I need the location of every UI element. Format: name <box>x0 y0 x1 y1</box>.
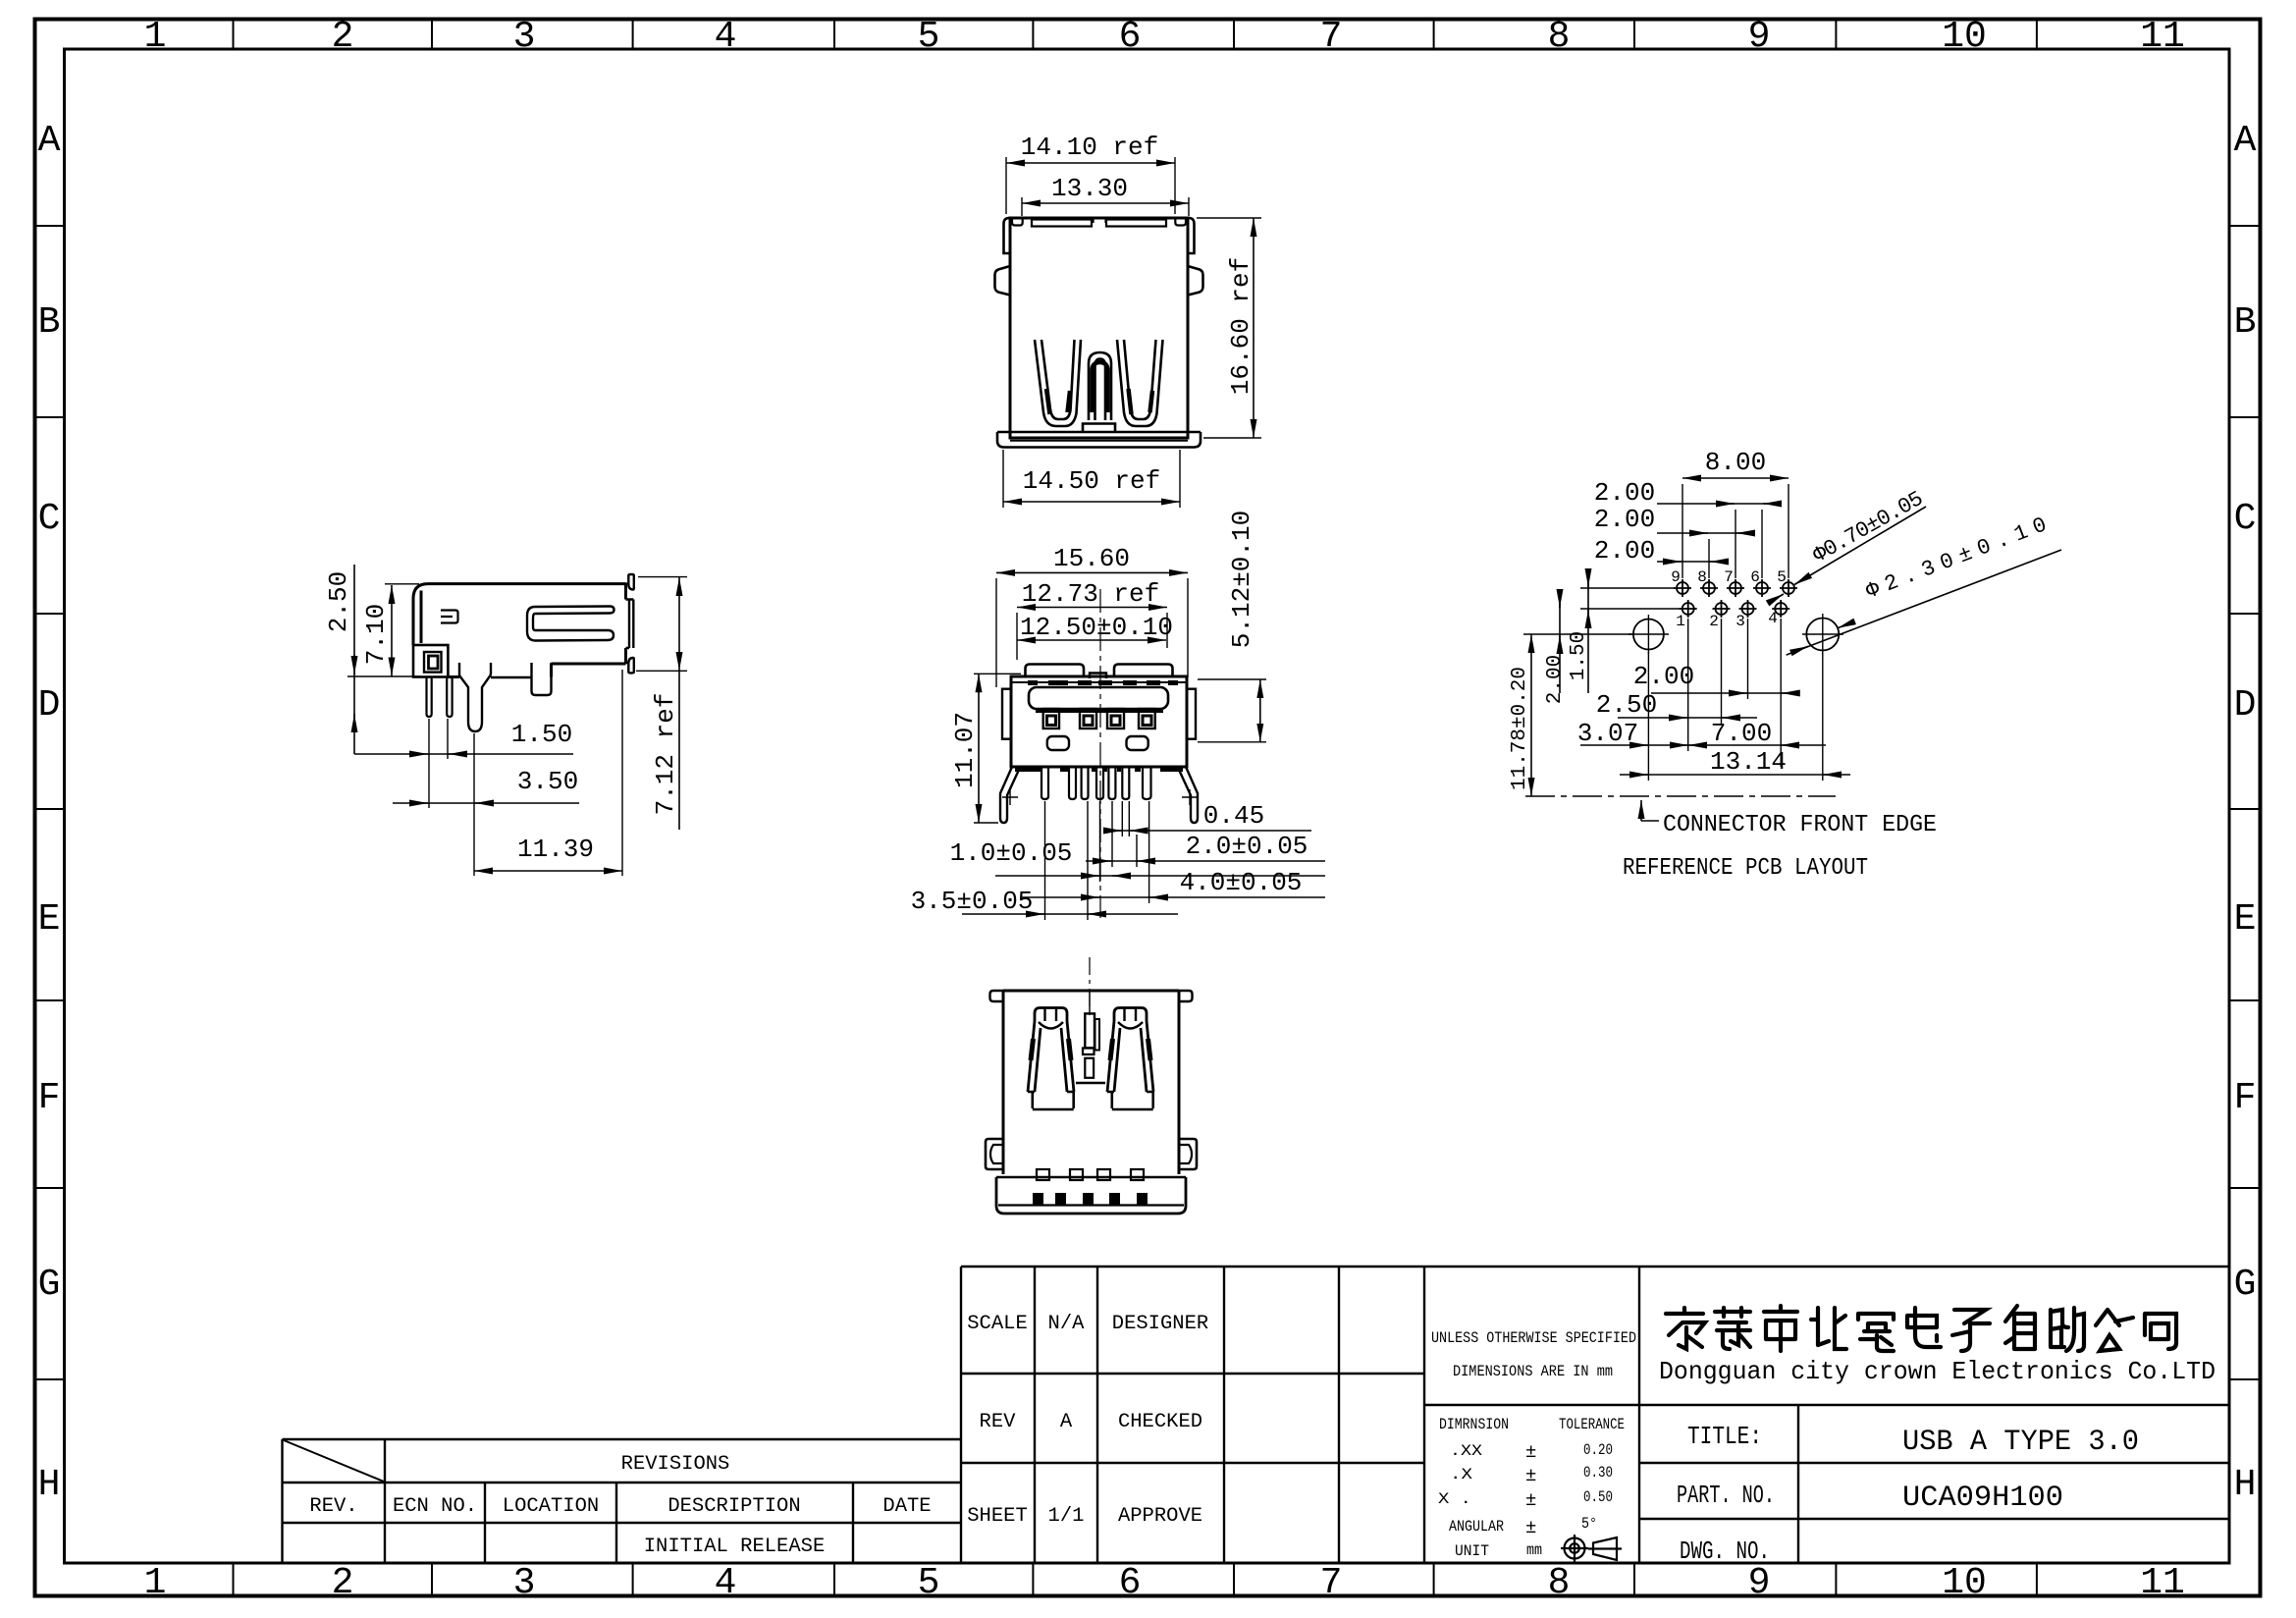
svg-text:9: 9 <box>1671 568 1681 586</box>
svg-text:11.07: 11.07 <box>950 712 980 788</box>
svg-text:H: H <box>38 1464 61 1506</box>
svg-text:7: 7 <box>1320 1562 1343 1604</box>
svg-text:UNIT: UNIT <box>1455 1542 1489 1560</box>
svg-text:2.00: 2.00 <box>1594 505 1655 534</box>
svg-text:LOCATION: LOCATION <box>503 1495 599 1518</box>
svg-text:8: 8 <box>1548 1562 1571 1604</box>
svg-text:9: 9 <box>1748 1562 1771 1604</box>
svg-text:3.50: 3.50 <box>517 767 578 796</box>
svg-text:ANGULAR: ANGULAR <box>1449 1518 1504 1536</box>
svg-text:Dongguan city crown Electronic: Dongguan city crown Electronics Co.LTD <box>1659 1357 2216 1386</box>
svg-text:7.10: 7.10 <box>361 604 391 665</box>
svg-text:10: 10 <box>1942 16 1987 58</box>
svg-text:D: D <box>2234 684 2257 727</box>
svg-text:0.45: 0.45 <box>1203 801 1264 831</box>
svg-text:14.10 ref: 14.10 ref <box>1021 133 1158 162</box>
svg-text:5: 5 <box>918 16 940 58</box>
svg-text:11.78±0.20: 11.78±0.20 <box>1509 667 1531 790</box>
svg-text:±: ± <box>1525 1517 1536 1538</box>
svg-text:9: 9 <box>1748 16 1771 58</box>
svg-text:REV.: REV. <box>309 1495 357 1518</box>
svg-text:16.60 ref: 16.60 ref <box>1226 257 1255 395</box>
svg-text:1.50: 1.50 <box>1568 631 1590 680</box>
svg-text:2.50: 2.50 <box>324 571 353 632</box>
svg-text:CHECKED: CHECKED <box>1118 1411 1202 1433</box>
svg-text:4.0±0.05: 4.0±0.05 <box>1180 868 1303 897</box>
svg-text:2: 2 <box>332 1562 354 1604</box>
svg-text:DIMRNSION: DIMRNSION <box>1439 1416 1509 1433</box>
svg-text:7.12 ref: 7.12 ref <box>651 693 680 816</box>
svg-text:ECN NO.: ECN NO. <box>393 1495 477 1518</box>
svg-text:8: 8 <box>1548 16 1571 58</box>
svg-text:±: ± <box>1525 1489 1536 1511</box>
svg-text:6: 6 <box>1750 568 1760 586</box>
svg-text:APPROVE: APPROVE <box>1118 1505 1202 1528</box>
svg-text:F: F <box>2234 1077 2257 1119</box>
svg-text:A: A <box>2234 120 2257 162</box>
svg-text:G: G <box>2234 1264 2257 1306</box>
svg-text:1: 1 <box>144 16 167 58</box>
svg-text:13.14: 13.14 <box>1710 747 1787 777</box>
svg-text:REFERENCE PCB LAYOUT: REFERENCE PCB LAYOUT <box>1623 855 1868 882</box>
svg-text:4: 4 <box>715 1562 737 1604</box>
svg-text:USB A TYPE 3.0: USB A TYPE 3.0 <box>1902 1426 2139 1459</box>
svg-text:8.00: 8.00 <box>1705 448 1766 477</box>
svg-text:2.00: 2.00 <box>1594 536 1655 566</box>
svg-text:4: 4 <box>1768 610 1778 627</box>
svg-text:D: D <box>38 684 61 727</box>
svg-text:DWG. NO.: DWG. NO. <box>1680 1537 1770 1566</box>
svg-text:11: 11 <box>2140 16 2185 58</box>
svg-text:±: ± <box>1525 1441 1536 1463</box>
svg-text:6: 6 <box>1119 1562 1142 1604</box>
svg-text:SHEET: SHEET <box>967 1505 1028 1528</box>
svg-text:14.50 ref: 14.50 ref <box>1023 466 1160 496</box>
svg-text:12.50±0.10: 12.50±0.10 <box>1020 613 1173 642</box>
svg-text:2.00: 2.00 <box>1544 655 1567 704</box>
svg-text:1.50: 1.50 <box>511 720 572 749</box>
svg-text:C: C <box>38 498 61 540</box>
svg-text:2.0±0.05: 2.0±0.05 <box>1186 832 1308 861</box>
svg-text:11.39: 11.39 <box>517 835 594 864</box>
svg-text:1/1: 1/1 <box>1048 1505 1085 1528</box>
svg-text:8: 8 <box>1697 568 1707 586</box>
svg-text:mm: mm <box>1526 1541 1542 1559</box>
svg-text:2: 2 <box>1709 613 1719 630</box>
svg-text:B: B <box>2234 301 2257 344</box>
svg-text:.X: .X <box>1450 1466 1473 1483</box>
svg-text:3: 3 <box>513 1562 536 1604</box>
svg-text:1: 1 <box>144 1562 167 1604</box>
svg-text:1.0±0.05: 1.0±0.05 <box>950 838 1073 868</box>
svg-text:0.50: 0.50 <box>1583 1488 1613 1506</box>
svg-text:15.60: 15.60 <box>1053 544 1130 573</box>
svg-text:G: G <box>38 1264 61 1306</box>
svg-text:7: 7 <box>1320 16 1343 58</box>
svg-text:REVISIONS: REVISIONS <box>621 1453 730 1476</box>
svg-text:5°: 5° <box>1581 1515 1597 1533</box>
svg-text:2: 2 <box>332 16 354 58</box>
svg-text:E: E <box>2234 898 2257 941</box>
svg-text:.XX: .XX <box>1450 1442 1483 1460</box>
svg-text:N/A: N/A <box>1048 1313 1086 1335</box>
svg-text:UCA09H100: UCA09H100 <box>1902 1482 2063 1515</box>
svg-text:REV: REV <box>980 1411 1017 1433</box>
svg-text:6: 6 <box>1119 16 1142 58</box>
svg-text:A: A <box>1060 1411 1073 1433</box>
svg-text:7.00: 7.00 <box>1711 719 1772 748</box>
svg-text:F: F <box>38 1077 61 1119</box>
svg-text:X .: X . <box>1438 1490 1471 1508</box>
svg-text:2.00: 2.00 <box>1594 478 1655 508</box>
svg-text:1: 1 <box>1676 613 1685 630</box>
svg-text:5.12±0.10: 5.12±0.10 <box>1227 511 1256 648</box>
svg-text:SCALE: SCALE <box>967 1313 1028 1335</box>
svg-text:3: 3 <box>513 16 536 58</box>
svg-text:DIMENSIONS ARE IN mm: DIMENSIONS ARE IN mm <box>1453 1363 1613 1380</box>
svg-text:3: 3 <box>1735 613 1745 630</box>
svg-text:PART. NO.: PART. NO. <box>1677 1481 1775 1510</box>
svg-text:CONNECTOR FRONT EDGE: CONNECTOR FRONT EDGE <box>1663 812 1937 838</box>
svg-text:3.5±0.05: 3.5±0.05 <box>911 887 1034 916</box>
svg-text:10: 10 <box>1942 1562 1987 1604</box>
svg-text:TITLE:: TITLE: <box>1687 1422 1762 1451</box>
svg-text:2.00: 2.00 <box>1633 662 1694 691</box>
svg-text:12.73 ref: 12.73 ref <box>1022 579 1159 609</box>
svg-text:11: 11 <box>2140 1562 2185 1604</box>
svg-text:A: A <box>38 120 61 162</box>
svg-text:INITIAL RELEASE: INITIAL RELEASE <box>644 1536 826 1558</box>
svg-text:5: 5 <box>1777 568 1787 586</box>
svg-text:C: C <box>2234 498 2257 540</box>
svg-text:5: 5 <box>918 1562 940 1604</box>
svg-text:B: B <box>38 301 61 344</box>
svg-text:3.07: 3.07 <box>1577 719 1638 748</box>
svg-text:0.20: 0.20 <box>1583 1441 1613 1459</box>
svg-text:4: 4 <box>715 16 737 58</box>
svg-text:DESCRIPTION: DESCRIPTION <box>667 1495 800 1518</box>
svg-text:TOLERANCE: TOLERANCE <box>1559 1416 1625 1433</box>
svg-text:E: E <box>38 898 61 941</box>
svg-text:7: 7 <box>1724 568 1734 586</box>
svg-text:UNLESS OTHERWISE SPECIFIED: UNLESS OTHERWISE SPECIFIED <box>1431 1329 1636 1347</box>
svg-text:DESIGNER: DESIGNER <box>1112 1313 1208 1335</box>
svg-text:±: ± <box>1525 1465 1536 1486</box>
svg-text:H: H <box>2234 1464 2257 1506</box>
svg-text:0.30: 0.30 <box>1583 1464 1613 1482</box>
svg-text:DATE: DATE <box>882 1495 931 1518</box>
svg-text:13.30: 13.30 <box>1051 174 1128 203</box>
